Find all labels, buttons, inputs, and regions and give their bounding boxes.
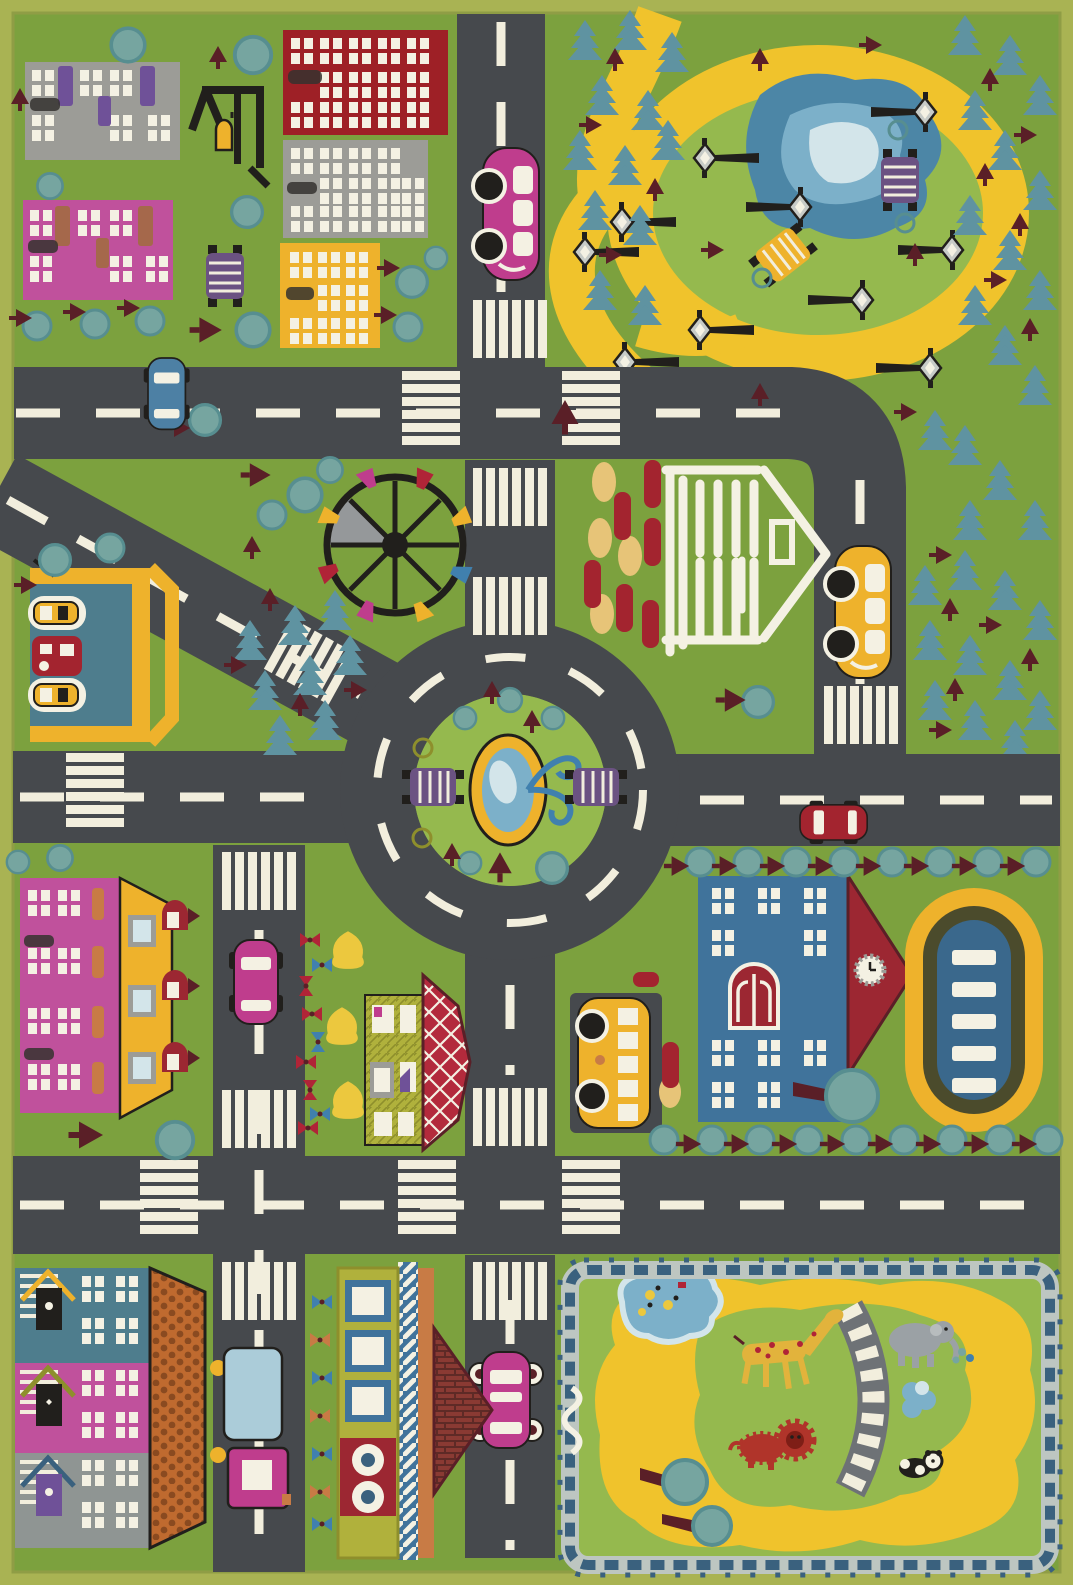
stadium-pool [905,888,1043,1132]
red-parked-car [32,636,82,676]
pink-car-side [473,148,539,280]
school-door [730,964,778,1028]
pink-car-top [229,940,283,1024]
gray-apartment-2 [283,140,428,238]
roof-windows [128,915,156,1084]
school-bus [577,998,650,1128]
yellow-house [280,243,380,348]
magenta-rowhouse [15,1363,150,1453]
tree-row-lower [650,1126,1062,1154]
teal-rowhouse [15,1268,150,1363]
blue-car-top [144,358,190,429]
diamond-roof-house [365,975,470,1150]
red-apartment [283,30,448,135]
parked-car [662,1042,679,1088]
red-car-top [800,801,867,844]
purple-bench [206,245,244,307]
gray-rowhouse [15,1453,150,1548]
purple-bench [881,149,919,211]
orange-shingle-roof [150,1268,205,1548]
tree [743,687,774,718]
rowhouses [15,1268,205,1548]
blue-framed-windows [345,1280,391,1422]
rug-scene [0,0,1073,1585]
pink-apartment [23,200,173,300]
yellow-car-side [825,546,891,678]
red-panel [340,1438,396,1516]
gray-apartment [25,62,180,160]
zoo [560,1260,1060,1575]
parked-car [633,972,659,987]
play-rug-photo [0,0,1073,1585]
